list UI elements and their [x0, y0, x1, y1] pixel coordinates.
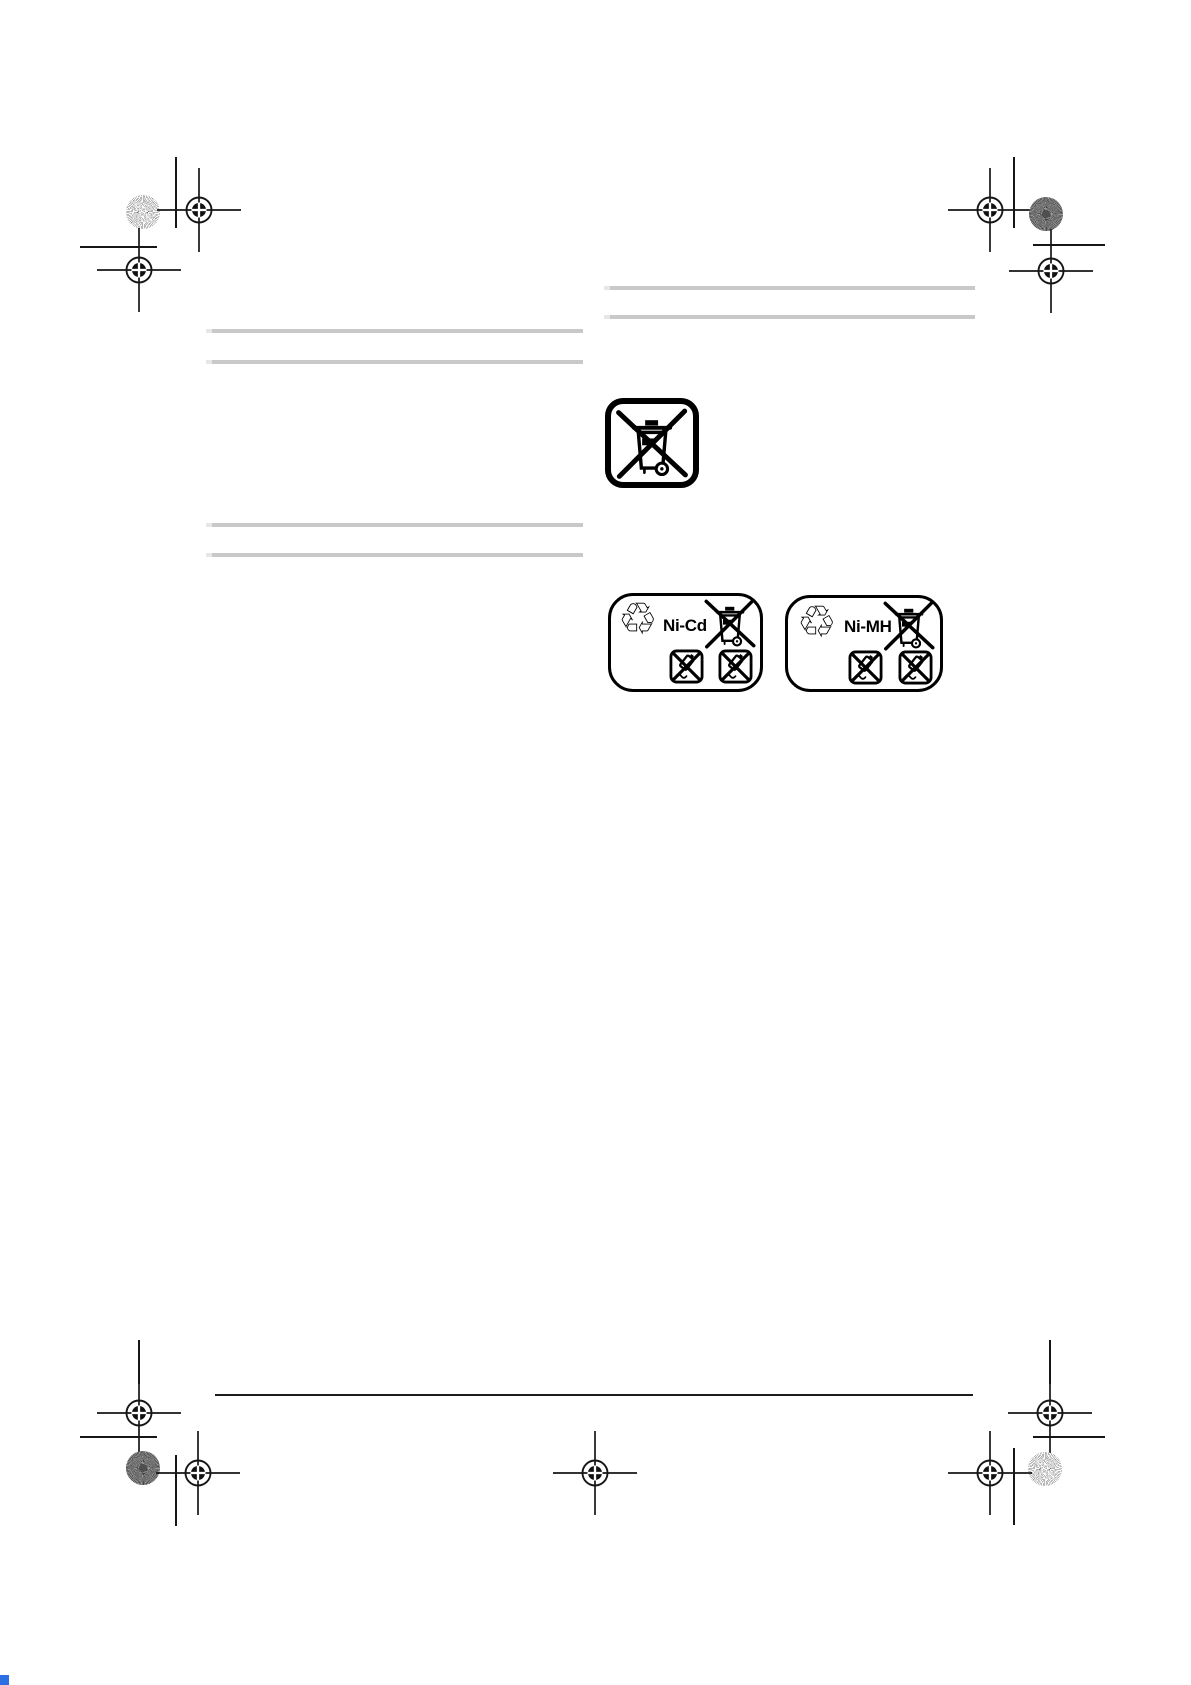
weee-symbol [605, 398, 699, 488]
heading-placeholder-bar [206, 329, 583, 333]
battery-warning-square-icon [897, 650, 934, 685]
weee-crossed-bin-icon [612, 405, 692, 481]
heading-placeholder-bar [206, 360, 583, 364]
heading-placeholder-bar [206, 523, 583, 527]
registration-mark-icon [945, 1428, 1035, 1518]
battery-warning-square-icon [717, 649, 754, 684]
battery-warning-square-icon [668, 649, 705, 684]
crossed-bin-icon [880, 598, 938, 652]
registration-mark-icon [94, 225, 184, 315]
crop-line [1033, 1436, 1105, 1438]
manual-page: ♲ Ni-Cd [0, 0, 1191, 1685]
heading-placeholder-bar [604, 286, 975, 290]
battery-warning-square-icon [847, 650, 884, 685]
recycle-icon: ♲ [618, 598, 657, 642]
battery-label-nicd: ♲ Ni-Cd [608, 593, 763, 692]
heading-placeholder-bar [604, 315, 975, 319]
screen-artifact [0, 1675, 9, 1685]
recycle-icon: ♲ [797, 601, 836, 645]
registration-mark-icon [550, 1428, 640, 1518]
registration-mark-icon [1006, 226, 1096, 316]
crossed-bin-icon [701, 596, 759, 650]
heading-placeholder-bar [206, 553, 583, 557]
battery-label-nimh: ♲ Ni-MH [785, 595, 943, 692]
registration-mark-icon [153, 1428, 243, 1518]
footer-rule [215, 1394, 973, 1396]
crop-line [80, 1436, 157, 1438]
crop-line [1013, 157, 1015, 228]
